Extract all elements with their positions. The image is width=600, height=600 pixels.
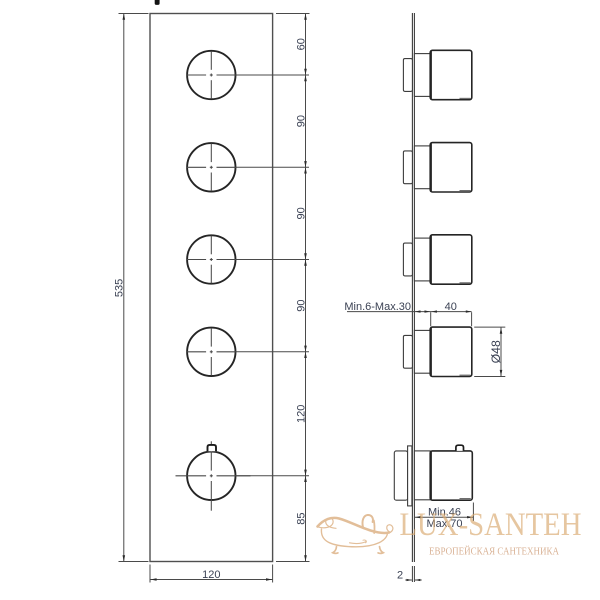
svg-text:60: 60 (295, 38, 307, 50)
svg-text:LUX-SANTEH: LUX-SANTEH (400, 507, 582, 543)
svg-text:535: 535 (113, 279, 125, 297)
svg-text:120: 120 (202, 569, 220, 581)
svg-text:90: 90 (295, 207, 307, 219)
svg-text:40: 40 (445, 301, 457, 313)
svg-text:2: 2 (397, 569, 403, 581)
svg-text:120: 120 (295, 405, 307, 423)
svg-text:85: 85 (295, 513, 307, 525)
svg-text:90: 90 (295, 300, 307, 312)
svg-text:90: 90 (295, 115, 307, 127)
svg-text:Ø48: Ø48 (489, 340, 503, 363)
svg-text:ЕВРОПЕЙСКАЯ САНТЕХНИКА: ЕВРОПЕЙСКАЯ САНТЕХНИКА (429, 546, 559, 558)
